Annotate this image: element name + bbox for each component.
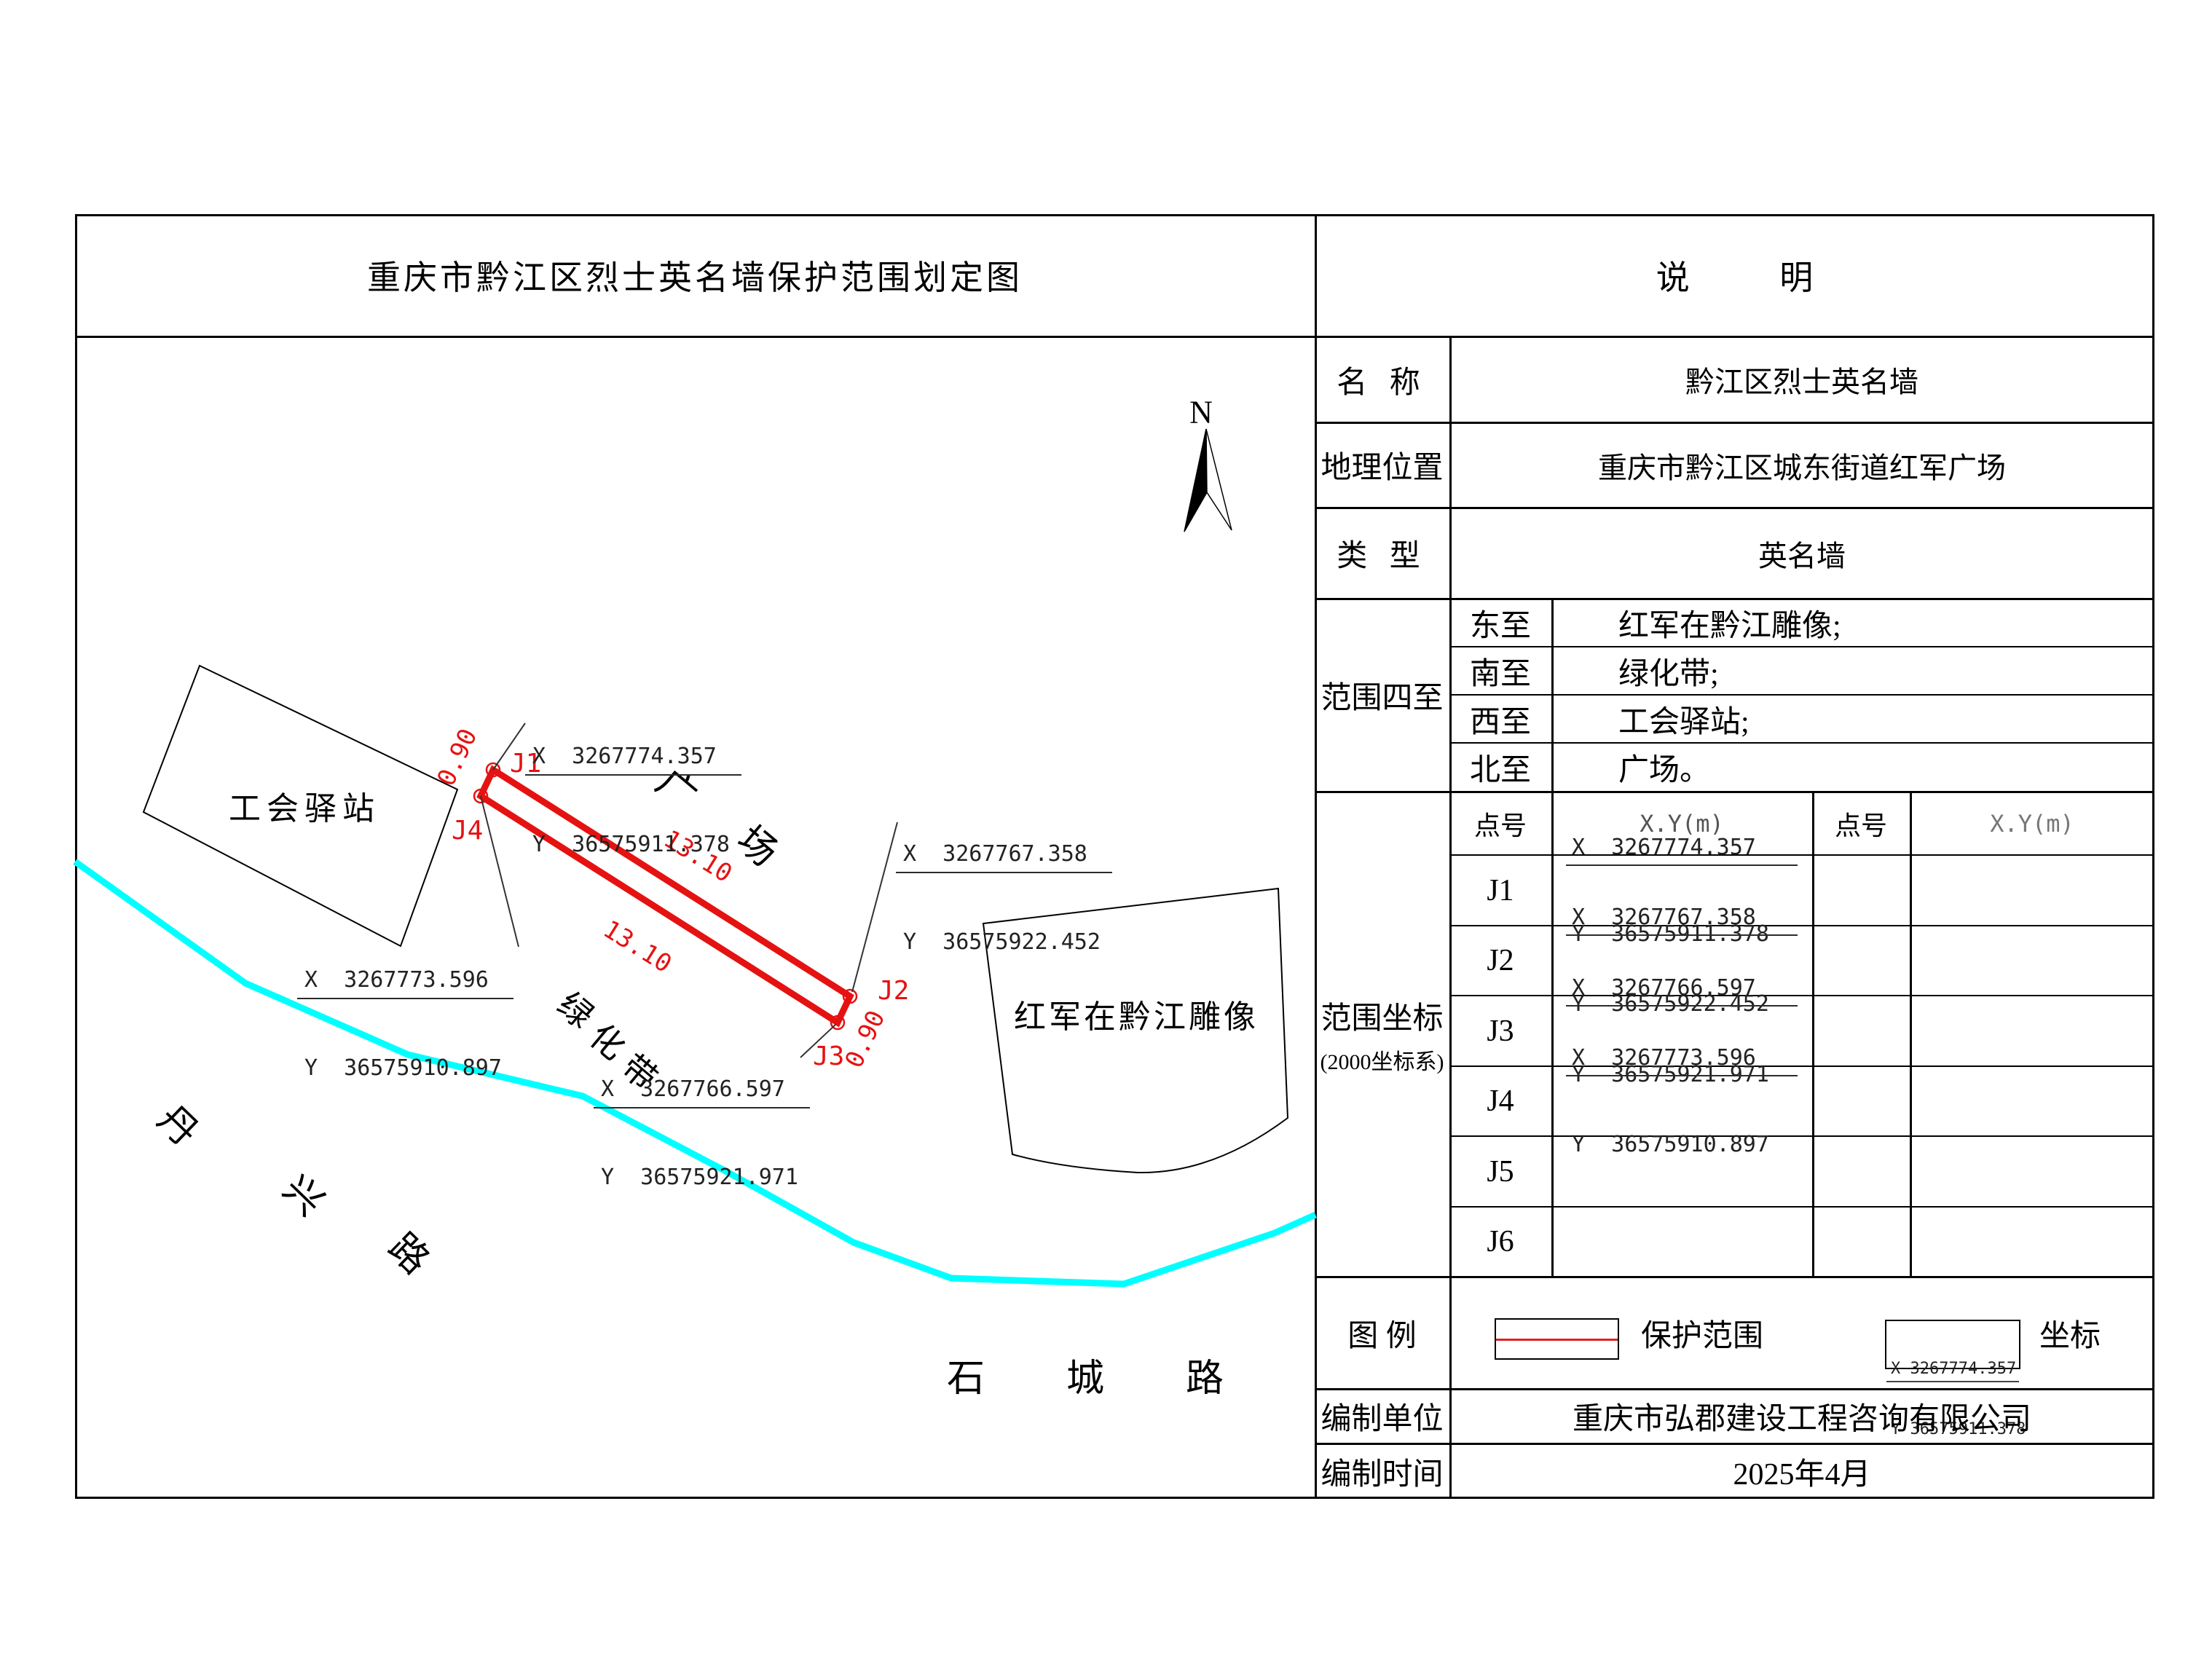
callout-j1: X 3267774.357 Y 36575911.378 (525, 693, 741, 883)
point-label-j2: J2 (878, 976, 909, 1006)
callout-y: Y 36575911.378 (525, 827, 741, 857)
callout-j4: X 3267773.596 Y 36575910.897 (297, 916, 513, 1106)
north-arrow-right (1206, 429, 1232, 530)
callout-y: Y 36575921.971 (594, 1159, 810, 1190)
callout-x: X 3267766.597 (594, 1076, 810, 1108)
union-station-label: 工会驿站 (229, 782, 380, 829)
drawing-sheet: { "page": { "title_left": "重庆市黔江区烈士英名墙保护… (0, 0, 2212, 1678)
statue-label: 红军在黔江雕像 (1014, 990, 1259, 1037)
callout-j3: X 3267766.597 Y 36575921.971 (594, 1025, 810, 1216)
callout-y: Y 36575922.452 (896, 924, 1112, 955)
north-letter: N (1189, 394, 1213, 431)
point-label-j3: J3 (813, 1041, 844, 1071)
callout-x: X 3267774.357 (525, 744, 741, 776)
north-arrow-left (1184, 429, 1207, 532)
callout-x: X 3267767.358 (896, 841, 1112, 873)
callout-j2: X 3267767.358 Y 36575922.452 (896, 790, 1112, 980)
shicheng-road-label: 石城路 (947, 1347, 1305, 1402)
point-label-j4: J4 (452, 816, 483, 846)
leader-j2 (852, 822, 897, 992)
callout-y: Y 36575910.897 (297, 1050, 513, 1081)
callout-x: X 3267773.596 (297, 967, 513, 999)
